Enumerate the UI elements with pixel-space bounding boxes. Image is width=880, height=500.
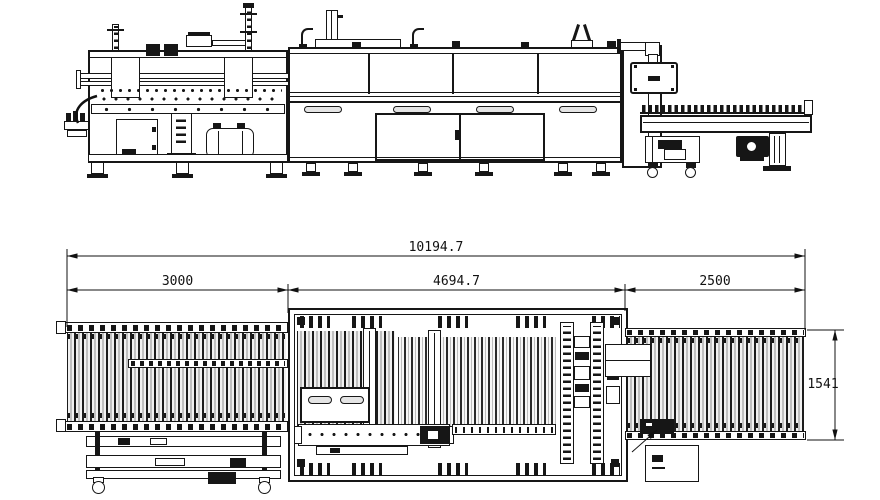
cad-canvas: 10194.7 3000 4694.7 2500 1541 [0, 0, 880, 500]
leader-arrow [632, 430, 657, 452]
drain-hose [76, 96, 97, 123]
dimension-layer [0, 0, 880, 500]
